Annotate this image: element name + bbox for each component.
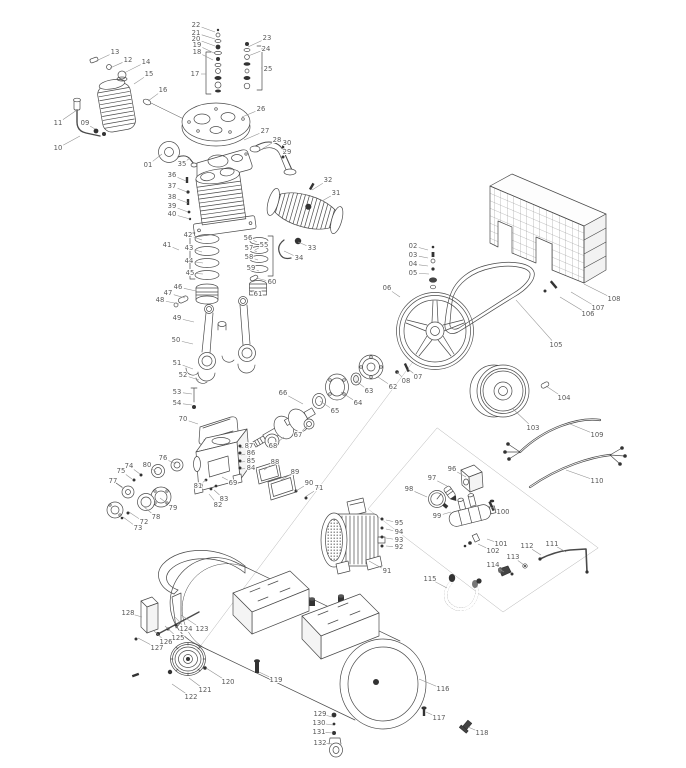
part-label-30: 30 xyxy=(283,139,292,147)
ring-stack-left xyxy=(190,233,219,304)
part-label-05: 05 xyxy=(409,269,418,277)
part-label-115: 115 xyxy=(424,575,437,583)
part-label-105: 105 xyxy=(550,341,563,349)
leader-line-05 xyxy=(419,273,429,274)
valve-stack-right xyxy=(244,42,262,90)
part-label-73: 73 xyxy=(134,524,143,532)
part-label-87: 87 xyxy=(245,442,254,450)
diagram-canvas: 0102030405060708091011121314151617181920… xyxy=(0,0,686,768)
part-label-06: 06 xyxy=(383,284,392,292)
part-label-67: 67 xyxy=(294,431,303,439)
part-label-34: 34 xyxy=(295,254,304,262)
part-label-130: 130 xyxy=(313,719,326,727)
part-label-59: 59 xyxy=(247,264,256,272)
part-label-96: 96 xyxy=(448,465,457,473)
part-label-27: 27 xyxy=(261,127,270,135)
part-label-12: 12 xyxy=(124,56,133,64)
cylinder-block xyxy=(186,165,256,237)
leader-line-120 xyxy=(206,668,223,679)
leader-line-93 xyxy=(386,538,393,539)
leader-line-03 xyxy=(419,256,428,258)
part-label-98: 98 xyxy=(405,485,414,493)
part-label-68: 68 xyxy=(269,442,278,450)
part-label-01: 01 xyxy=(144,161,153,169)
part-label-15: 15 xyxy=(145,70,154,78)
part-label-104: 104 xyxy=(558,394,571,402)
part-label-109: 109 xyxy=(591,431,604,439)
part-label-43: 43 xyxy=(185,244,194,252)
leader-line-106 xyxy=(560,297,583,311)
part-label-03: 03 xyxy=(409,251,418,259)
part-label-58: 58 xyxy=(245,253,254,261)
part-label-79: 79 xyxy=(169,504,178,512)
leader-line-113 xyxy=(518,561,524,565)
part-label-112: 112 xyxy=(521,542,534,550)
part-label-64: 64 xyxy=(354,399,363,407)
part-label-102: 102 xyxy=(487,547,500,555)
part-label-128: 128 xyxy=(122,609,135,617)
leader-line-44 xyxy=(195,262,203,263)
motor-pulley xyxy=(470,365,550,417)
part-label-84: 84 xyxy=(247,464,256,472)
radiator-bolt xyxy=(544,280,558,292)
leader-line-72 xyxy=(129,512,139,519)
part-label-46: 46 xyxy=(174,283,183,291)
part-label-119: 119 xyxy=(270,676,283,684)
leader-line-98 xyxy=(414,491,427,497)
drain-parts xyxy=(421,706,473,733)
part-label-08: 08 xyxy=(402,377,411,385)
flex-hose xyxy=(446,574,482,609)
leader-line-22 xyxy=(202,27,215,32)
leader-line-04 xyxy=(419,265,428,266)
leader-line-43 xyxy=(195,250,202,252)
part-label-14: 14 xyxy=(142,58,151,66)
part-label-77: 77 xyxy=(109,477,118,485)
caster xyxy=(329,713,343,757)
part-label-74: 74 xyxy=(125,462,134,470)
part-label-29: 29 xyxy=(283,148,292,156)
dipstick xyxy=(191,388,197,409)
part-label-51: 51 xyxy=(173,359,182,367)
part-label-02: 02 xyxy=(409,242,418,250)
part-label-71: 71 xyxy=(315,484,324,492)
leader-line-37 xyxy=(178,188,187,192)
power-cables xyxy=(503,420,627,487)
part-label-97: 97 xyxy=(428,474,437,482)
leader-line-92 xyxy=(386,546,393,547)
leader-line-74 xyxy=(134,470,140,474)
leader-line-46 xyxy=(184,288,196,291)
part-label-76: 76 xyxy=(159,454,168,462)
part-label-93: 93 xyxy=(395,536,404,544)
part-label-50: 50 xyxy=(172,336,181,344)
leader-line-75 xyxy=(126,475,132,479)
part-label-99: 99 xyxy=(433,512,442,520)
leader-line-50 xyxy=(182,341,193,344)
leader-line-82 xyxy=(209,494,214,500)
leader-line-130 xyxy=(325,724,333,725)
leader-line-107 xyxy=(571,292,593,305)
part-label-45: 45 xyxy=(186,269,195,277)
part-label-60: 60 xyxy=(268,278,277,286)
part-label-10: 10 xyxy=(54,144,63,152)
leader-line-59 xyxy=(257,270,259,271)
oil-cap xyxy=(118,71,126,79)
leader-line-95 xyxy=(386,520,393,522)
part-label-122: 122 xyxy=(185,693,198,701)
part-label-81: 81 xyxy=(194,482,203,490)
part-label-62: 62 xyxy=(389,383,398,391)
leader-line-57 xyxy=(254,251,257,252)
part-label-88: 88 xyxy=(271,458,280,466)
leader-line-09 xyxy=(90,126,95,129)
leader-line-15 xyxy=(134,77,144,84)
part-label-65: 65 xyxy=(331,407,340,415)
part-label-75: 75 xyxy=(117,467,126,475)
part-label-61: 61 xyxy=(254,290,263,298)
leader-line-53 xyxy=(183,393,192,394)
part-label-121: 121 xyxy=(199,686,212,694)
leader-line-24 xyxy=(248,51,260,56)
cylinder-bolts xyxy=(186,177,191,220)
leader-line-38 xyxy=(178,199,188,203)
leader-line-99 xyxy=(443,512,451,514)
cooling-fin-block xyxy=(490,174,606,293)
part-label-124: 124 xyxy=(180,625,193,633)
leader-line-105 xyxy=(516,300,552,341)
part-label-80: 80 xyxy=(143,461,152,469)
leader-line-39 xyxy=(178,208,188,212)
leader-line-62 xyxy=(378,377,388,384)
part-label-57: 57 xyxy=(245,244,254,252)
leader-line-34 xyxy=(284,251,294,255)
part-label-49: 49 xyxy=(173,314,182,322)
part-label-16: 16 xyxy=(159,86,168,94)
part-label-90: 90 xyxy=(305,479,314,487)
leader-line-31 xyxy=(322,196,331,201)
part-label-32: 32 xyxy=(324,176,333,184)
leader-line-11 xyxy=(63,110,77,120)
leader-line-54 xyxy=(183,404,192,405)
leader-line-49 xyxy=(183,319,194,322)
leader-line-70 xyxy=(189,421,198,424)
flywheel-fasteners xyxy=(429,246,437,289)
leader-line-41 xyxy=(173,247,179,250)
leader-line-77 xyxy=(118,485,124,489)
part-label-22: 22 xyxy=(192,21,201,29)
part-label-37: 37 xyxy=(168,182,177,190)
part-label-35: 35 xyxy=(178,160,187,168)
leader-line-21 xyxy=(202,35,215,39)
part-label-48: 48 xyxy=(156,296,165,304)
leader-line-10 xyxy=(63,136,80,145)
part-label-127: 127 xyxy=(151,644,164,652)
exploded-parts-diagram: 0102030405060708091011121314151617181920… xyxy=(0,0,686,768)
part-label-95: 95 xyxy=(395,519,404,527)
part-label-118: 118 xyxy=(476,729,489,737)
part-label-89: 89 xyxy=(291,468,300,476)
part-label-120: 120 xyxy=(222,678,235,686)
leader-line-108 xyxy=(584,284,609,296)
part-label-63: 63 xyxy=(365,387,374,395)
leader-line-48 xyxy=(166,301,179,304)
part-label-108: 108 xyxy=(608,295,621,303)
connecting-rods xyxy=(186,297,256,384)
part-label-70: 70 xyxy=(179,415,188,423)
part-label-78: 78 xyxy=(152,513,161,521)
leader-line-14 xyxy=(124,65,141,73)
part-label-114: 114 xyxy=(487,561,500,569)
part-label-111: 111 xyxy=(546,540,559,548)
part-label-41: 41 xyxy=(163,241,172,249)
part-label-131: 131 xyxy=(313,728,326,736)
part-label-125: 125 xyxy=(172,634,185,642)
part-label-28: 28 xyxy=(273,136,282,144)
part-label-55: 55 xyxy=(260,241,269,249)
leader-line-06 xyxy=(392,291,400,297)
part-label-23: 23 xyxy=(263,34,272,42)
leader-line-40 xyxy=(178,216,190,219)
part-label-85: 85 xyxy=(247,457,256,465)
part-label-38: 38 xyxy=(168,193,177,201)
part-label-26: 26 xyxy=(257,105,266,113)
leader-line-51 xyxy=(183,365,193,369)
leader-line-16 xyxy=(148,94,158,101)
part-label-24: 24 xyxy=(262,45,271,53)
leader-line-12 xyxy=(110,62,123,68)
aftercooler-canister xyxy=(90,57,196,134)
part-label-66: 66 xyxy=(279,389,288,397)
part-label-110: 110 xyxy=(591,477,604,485)
part-label-129: 129 xyxy=(314,710,327,718)
part-label-18: 18 xyxy=(193,48,202,56)
leader-line-02 xyxy=(419,248,428,250)
leader-line-131 xyxy=(325,732,333,733)
side-cover-plates xyxy=(256,461,308,500)
part-label-117: 117 xyxy=(433,714,446,722)
part-label-21: 21 xyxy=(192,29,201,37)
part-label-44: 44 xyxy=(185,257,194,265)
saddle-box-left xyxy=(233,571,309,634)
part-label-47: 47 xyxy=(164,289,173,297)
leader-line-112 xyxy=(532,549,541,555)
leader-line-110 xyxy=(566,470,591,479)
part-label-69: 69 xyxy=(229,479,238,487)
leader-line-97 xyxy=(437,481,447,486)
leader-line-45 xyxy=(196,273,203,274)
part-label-36: 36 xyxy=(168,171,177,179)
leader-line-73 xyxy=(123,517,133,524)
part-label-04: 04 xyxy=(409,260,418,268)
part-label-52: 52 xyxy=(179,371,188,379)
part-label-116: 116 xyxy=(437,685,450,693)
crankshaft xyxy=(248,400,319,456)
leader-line-56 xyxy=(253,240,257,242)
part-label-07: 07 xyxy=(414,373,423,381)
leader-line-109 xyxy=(570,424,591,433)
part-label-42: 42 xyxy=(184,231,193,239)
part-label-56: 56 xyxy=(244,234,253,242)
part-label-11: 11 xyxy=(54,119,63,127)
part-label-123: 123 xyxy=(196,625,209,633)
part-label-113: 113 xyxy=(507,553,520,561)
part-label-33: 33 xyxy=(308,244,317,252)
part-label-103: 103 xyxy=(527,424,540,432)
leader-line-52 xyxy=(189,377,199,380)
part-label-92: 92 xyxy=(395,543,404,551)
leader-line-55 xyxy=(255,248,259,250)
leader-line-132 xyxy=(326,743,333,744)
leader-line-36 xyxy=(178,177,186,181)
part-label-31: 31 xyxy=(332,189,341,197)
part-label-100: 100 xyxy=(497,508,510,516)
part-label-94: 94 xyxy=(395,528,404,536)
part-label-107: 107 xyxy=(592,304,605,312)
leader-line-58 xyxy=(255,259,258,260)
part-label-09: 09 xyxy=(81,119,90,127)
check-valve-assembly xyxy=(429,465,497,547)
part-label-13: 13 xyxy=(111,48,120,56)
leader-line-115 xyxy=(435,582,447,588)
part-label-39: 39 xyxy=(168,202,177,210)
part-label-86: 86 xyxy=(247,449,256,457)
part-label-54: 54 xyxy=(173,399,182,407)
leader-line-94 xyxy=(386,529,393,531)
part-label-91: 91 xyxy=(383,567,392,575)
leader-line-20 xyxy=(202,41,215,46)
part-label-132: 132 xyxy=(314,739,327,747)
cylinder-head xyxy=(182,103,250,146)
part-label-17: 17 xyxy=(191,70,200,78)
leader-line-13 xyxy=(96,55,110,61)
leader-line-18 xyxy=(202,55,213,60)
electric-motor xyxy=(321,498,385,574)
leader-line-66 xyxy=(288,396,303,404)
part-label-53: 53 xyxy=(173,388,182,396)
part-label-40: 40 xyxy=(168,210,177,218)
part-label-25: 25 xyxy=(264,65,273,73)
leader-line-90 xyxy=(296,486,304,491)
part-label-83: 83 xyxy=(220,495,229,503)
